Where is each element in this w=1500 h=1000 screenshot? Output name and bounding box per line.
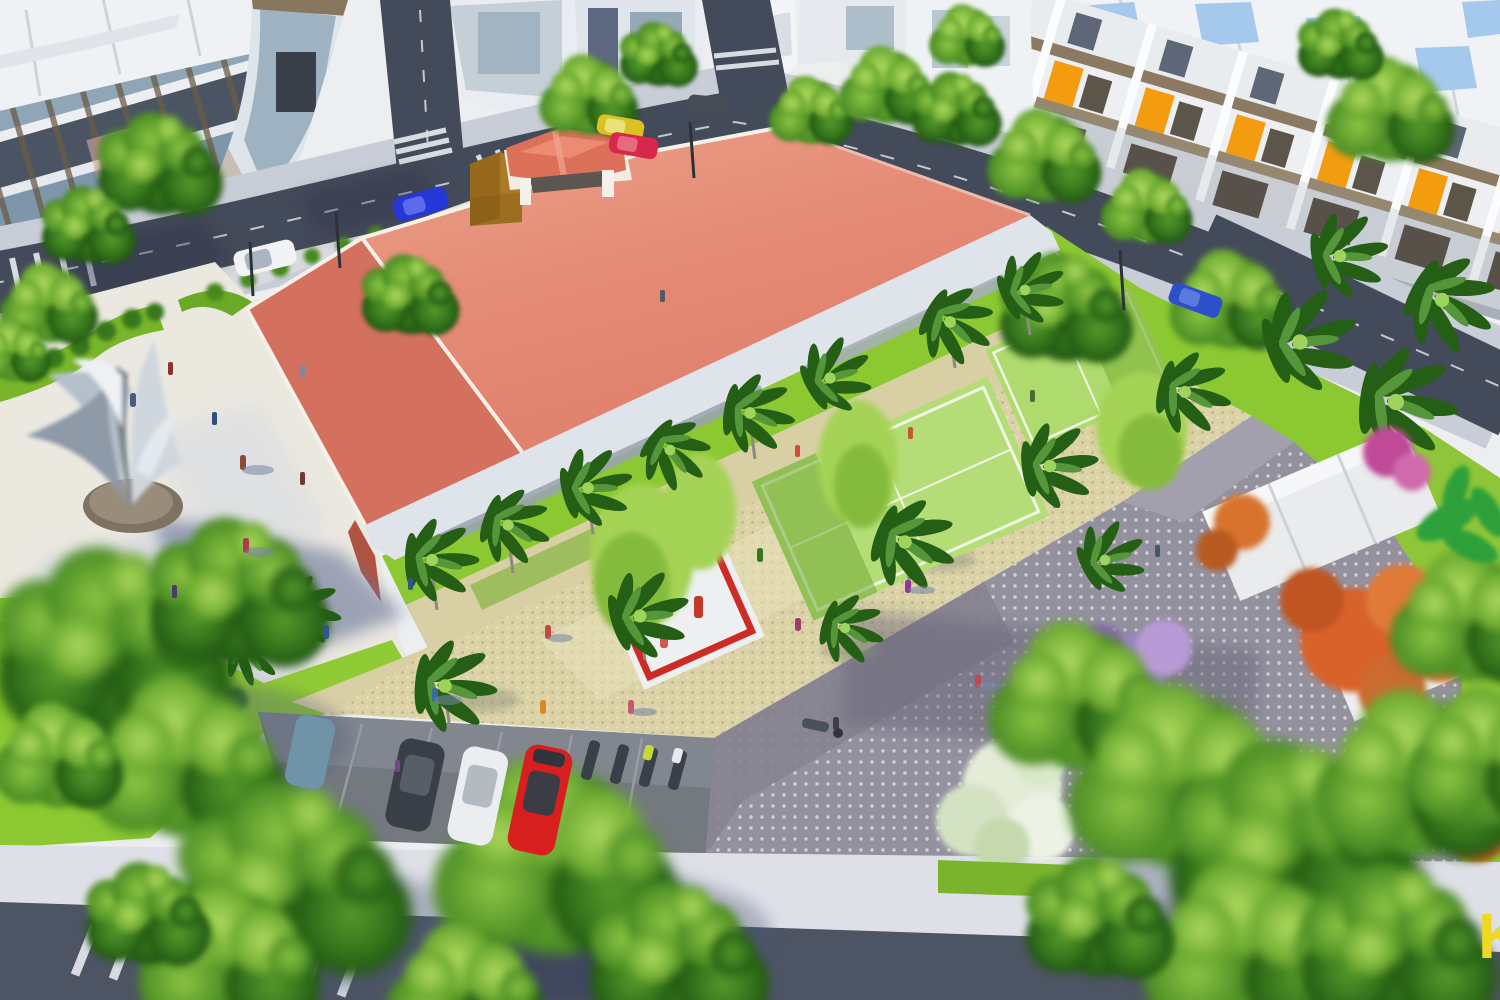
- svg-text:K: K: [1478, 900, 1500, 972]
